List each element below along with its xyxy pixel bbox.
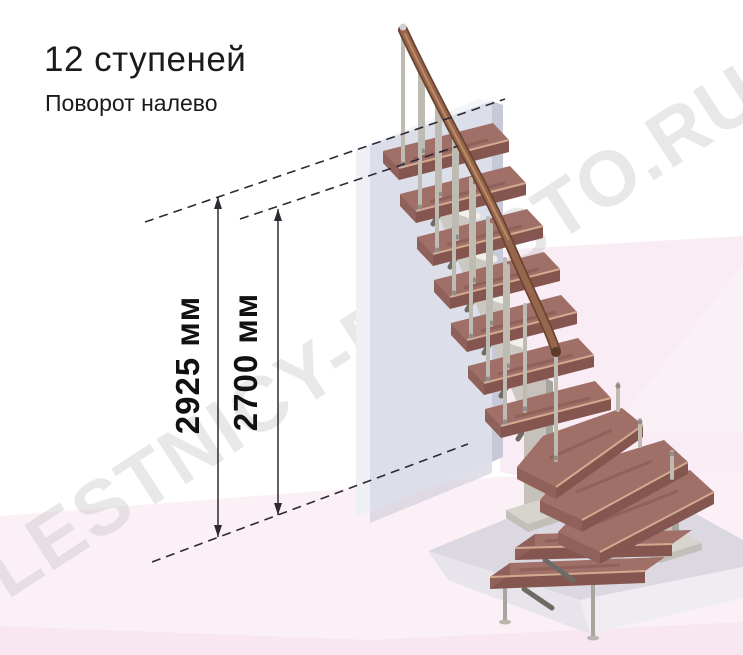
wall-left-edge — [356, 145, 370, 517]
dimension-label-total-rise: 2925 мм — [169, 296, 206, 434]
stair-diagram-page: { "title": { "steps_label": "12 ступеней… — [0, 0, 743, 655]
page-subtitle: Поворот налево — [45, 90, 218, 117]
dimension-label-top-step: 2700 мм — [227, 293, 264, 431]
page-title: 12 ступеней — [44, 40, 246, 80]
rail-end-cap — [551, 347, 561, 357]
rail-top-cap — [400, 24, 407, 31]
